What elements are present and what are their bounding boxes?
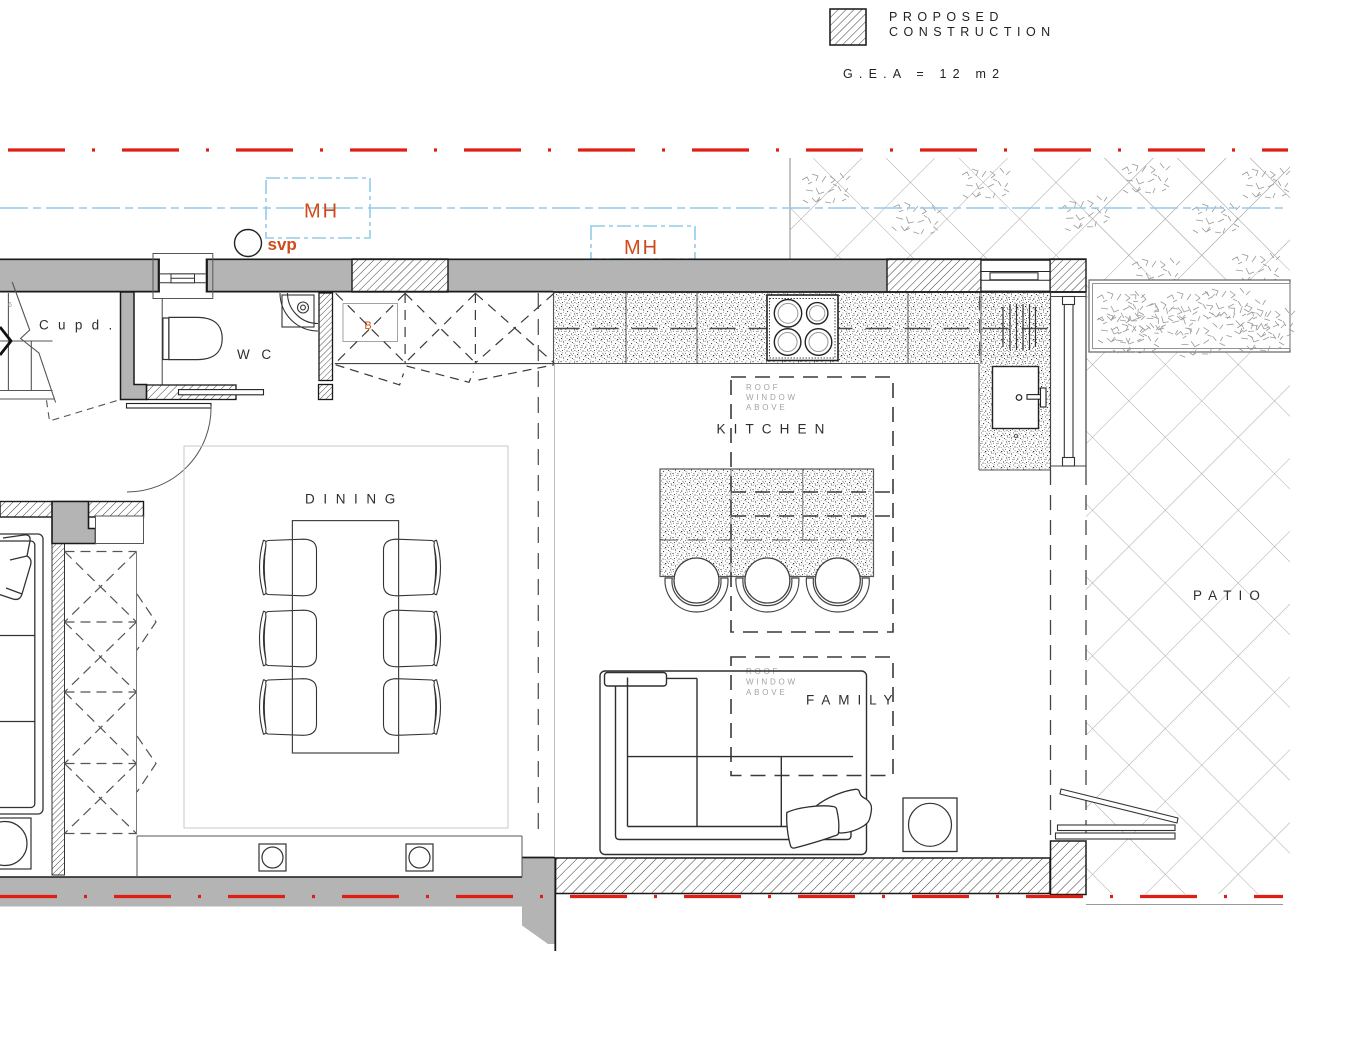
svg-text:WC: WC bbox=[237, 347, 283, 362]
svg-text:KITCHEN: KITCHEN bbox=[717, 422, 833, 437]
svg-text:6: 6 bbox=[8, 302, 12, 309]
svg-text:G.E.A = 12 m2: G.E.A = 12 m2 bbox=[843, 67, 1005, 81]
svg-text:WINDOW: WINDOW bbox=[746, 393, 798, 402]
svg-text:MH: MH bbox=[304, 201, 339, 223]
svg-text:ROOF: ROOF bbox=[746, 383, 780, 392]
svg-text:DINING: DINING bbox=[305, 492, 404, 507]
svg-text:PATIO: PATIO bbox=[1193, 588, 1267, 603]
svg-text:ABOVE: ABOVE bbox=[746, 688, 788, 697]
svg-text:WINDOW: WINDOW bbox=[746, 678, 798, 687]
svg-text:CONSTRUCTION: CONSTRUCTION bbox=[889, 25, 1056, 39]
svg-text:MH: MH bbox=[624, 237, 659, 259]
svg-text:ABOVE: ABOVE bbox=[746, 403, 788, 412]
svg-text:FAMILY: FAMILY bbox=[806, 693, 900, 708]
svg-text:Cupd.: Cupd. bbox=[39, 318, 122, 333]
svg-text:PROPOSED: PROPOSED bbox=[889, 10, 1004, 24]
svg-text:svp: svp bbox=[268, 235, 297, 254]
